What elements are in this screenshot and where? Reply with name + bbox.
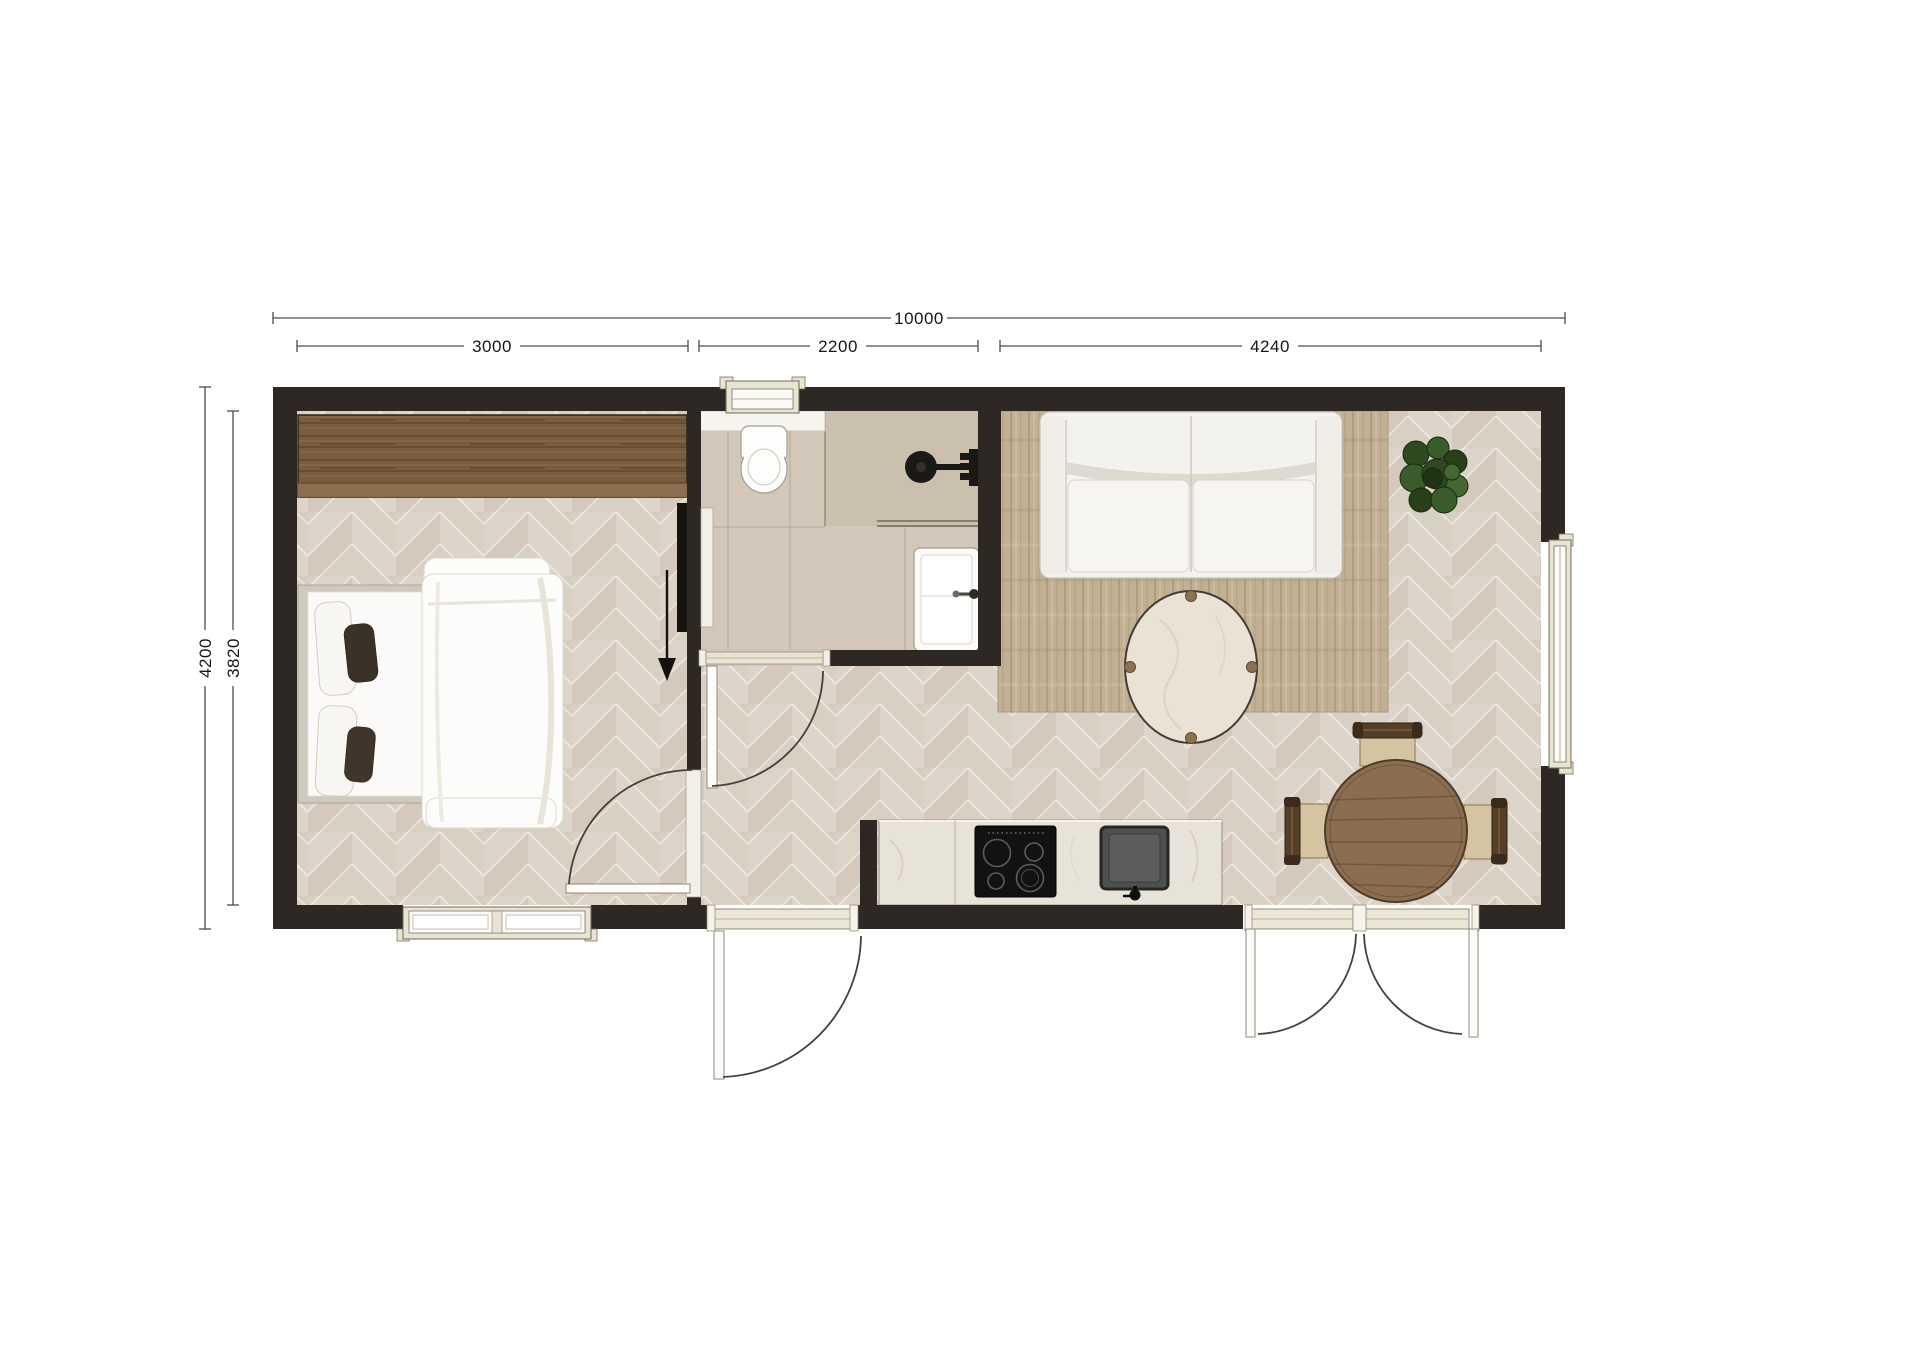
bathroom-south-wall bbox=[830, 650, 1001, 666]
double-bed bbox=[298, 558, 563, 828]
duvet bbox=[422, 558, 563, 828]
bedroom-window bbox=[397, 905, 597, 941]
entry-door-leaf bbox=[714, 931, 724, 1079]
sliding-door-panel bbox=[677, 503, 687, 632]
patio-door-leaf-right bbox=[1469, 929, 1478, 1037]
dim-label-segment-bathroom: 2200 bbox=[818, 337, 858, 356]
bedroom-door-opening bbox=[686, 770, 701, 897]
dining-chair-top bbox=[1353, 722, 1422, 766]
toilet bbox=[741, 426, 787, 493]
entry-door bbox=[707, 905, 861, 1079]
kitchen-stub-wall bbox=[860, 820, 877, 905]
bathroom-east-wall bbox=[978, 411, 1001, 666]
living-room-window bbox=[1541, 534, 1573, 774]
sofa bbox=[1040, 412, 1342, 578]
bathroom-window bbox=[720, 377, 805, 413]
entry-door-swing bbox=[723, 936, 861, 1077]
patio-door-swing-right bbox=[1364, 934, 1462, 1034]
kitchen bbox=[879, 820, 1222, 905]
accent-pillow bbox=[344, 726, 377, 783]
north-wall bbox=[273, 387, 1565, 411]
dim-label-interior-depth: 3820 bbox=[224, 638, 243, 678]
floor-plan: 10000 3000 2200 4240 4200 3820 bbox=[0, 0, 1920, 1358]
dim-label-segment-living: 4240 bbox=[1250, 337, 1290, 356]
west-wall bbox=[273, 387, 297, 929]
coffee-table bbox=[1125, 591, 1258, 744]
kitchen-sink bbox=[1101, 827, 1168, 901]
dim-label-segment-bedroom: 3000 bbox=[472, 337, 512, 356]
bedroom-door-leaf bbox=[566, 884, 690, 893]
bedroom-partition-wall bbox=[687, 411, 701, 770]
dining-chair-left bbox=[1284, 797, 1328, 865]
sliding-door-track bbox=[701, 508, 713, 627]
patio-door-swing-left bbox=[1258, 934, 1356, 1034]
dining-chair-right bbox=[1464, 798, 1507, 864]
dining-table bbox=[1325, 760, 1467, 902]
patio-door-leaf-left bbox=[1246, 929, 1255, 1037]
dim-label-overall-depth: 4200 bbox=[196, 638, 215, 678]
wardrobe bbox=[298, 415, 687, 497]
vanity-sink bbox=[914, 548, 979, 651]
patio-double-door bbox=[1243, 905, 1479, 1037]
cooktop bbox=[975, 826, 1056, 897]
bathroom-door-leaf bbox=[707, 666, 717, 788]
floor-plan-page: 10000 3000 2200 4240 4200 3820 bbox=[0, 0, 1920, 1358]
accent-pillow bbox=[343, 623, 379, 684]
dim-label-overall-width: 10000 bbox=[894, 309, 944, 328]
